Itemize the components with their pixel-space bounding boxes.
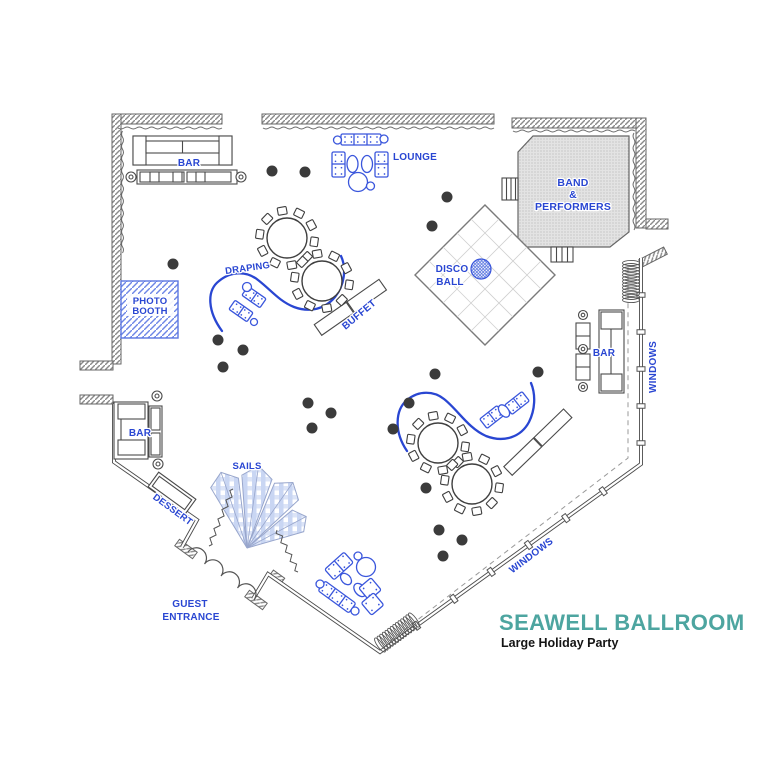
dining-table-top <box>452 464 492 504</box>
guest-entrance-label-1: GUEST <box>172 599 207 610</box>
wall-drape-wavy-line <box>122 131 124 253</box>
window-mullion-tick <box>637 330 645 335</box>
dining-chair <box>457 424 468 435</box>
dining-chair <box>255 229 264 239</box>
round-dining-table <box>440 452 503 515</box>
floorplan-canvas: BAR LOUNGE BAND & PERFORMERS DISCO BALL … <box>0 0 768 768</box>
stage-steps-left <box>502 178 518 200</box>
spiral-drape-coil-loop <box>623 267 640 272</box>
floorplan-svg: BAR LOUNGE BAND & PERFORMERS DISCO BALL … <box>0 0 768 768</box>
cocktail-table-dot <box>438 551 449 562</box>
sail-panel <box>211 472 247 548</box>
photo-booth-label-2: BOOTH <box>132 306 167 317</box>
stage-steps-bottom <box>551 247 573 262</box>
lounge-furniture <box>332 134 388 192</box>
cocktail-table-dot <box>457 535 468 546</box>
cocktail-table-dot <box>267 166 278 177</box>
disco-ball-label-1: DISCO <box>436 264 469 275</box>
buffet-tables-bottom <box>504 409 572 475</box>
disco-ball-label-2: BALL <box>436 277 463 288</box>
dining-chair <box>292 288 303 299</box>
dining-chair <box>306 219 317 230</box>
guest-entrance-doors <box>188 548 256 600</box>
windows-right-label: WINDOWS <box>648 341 659 393</box>
dining-chair <box>293 208 304 219</box>
dining-chair <box>406 434 415 444</box>
bar-top-label: BAR <box>178 158 201 169</box>
spiral-drape-coil-loop <box>623 264 640 269</box>
dining-chair <box>472 507 482 516</box>
cocktail-table-dot <box>213 335 224 346</box>
cocktail-table-dot <box>533 367 544 378</box>
sails-label: SAILS <box>233 461 262 472</box>
spiral-drape-coil-loop <box>623 285 640 290</box>
entrance-lounge-furniture <box>316 552 384 615</box>
window-mullion-tick <box>637 404 645 409</box>
page-title: SEAWELL BALLROOM <box>499 610 745 635</box>
dining-chair <box>328 251 339 262</box>
dining-chair <box>312 249 322 258</box>
round-dining-table <box>406 411 469 474</box>
wall-drape-wavy-line <box>263 127 494 129</box>
dining-chair <box>277 206 287 215</box>
dining-table-top <box>302 261 342 301</box>
dining-chair <box>486 497 498 509</box>
cocktail-table-dot <box>434 525 445 536</box>
cocktail-table-dot <box>300 167 311 178</box>
dining-chair <box>322 304 332 313</box>
dining-chair <box>290 272 299 282</box>
wall-drape-wavy-line <box>633 133 635 230</box>
cocktail-table-dot <box>307 423 318 434</box>
dining-chair <box>438 466 448 475</box>
sails-decor <box>209 466 306 572</box>
dining-chair <box>444 413 455 424</box>
disco-ball-icon <box>471 259 491 279</box>
dining-chair <box>491 465 502 476</box>
entrance-door-swings <box>188 548 256 600</box>
draping-furniture-bottom <box>480 391 530 428</box>
dining-chair <box>478 454 489 465</box>
guest-entrance-label-2: ENTRANCE <box>162 612 219 623</box>
dining-chair <box>412 418 424 430</box>
dining-chair <box>428 411 438 420</box>
wall-drape-wavy-line <box>513 130 635 132</box>
dining-chair <box>442 491 453 502</box>
dining-chair <box>345 280 354 290</box>
spiral-drape-coil-loop <box>623 297 640 302</box>
band-stage-label-1: BAND <box>557 177 588 189</box>
cocktail-table-dot <box>238 345 249 356</box>
cocktail-table-dot <box>388 424 399 435</box>
spiral-drape-coil-loop <box>623 276 640 281</box>
dining-chair <box>408 450 419 461</box>
band-stage-label-3: PERFORMERS <box>535 201 611 213</box>
cocktail-table-dot <box>430 369 441 380</box>
window-mullion-tick <box>637 367 645 372</box>
dining-table-top <box>267 218 307 258</box>
spiral-drape-coil-loop <box>623 279 640 284</box>
cocktail-table-dot <box>442 192 453 203</box>
wall-drape-wavy-line <box>118 127 222 129</box>
page-subtitle: Large Holiday Party <box>501 636 618 650</box>
spiral-drape-coil-loop <box>623 260 640 265</box>
cocktail-table-dot <box>427 221 438 232</box>
draping-furniture-top <box>229 283 266 326</box>
window-mullion-tick <box>637 441 645 446</box>
lounge-label: LOUNGE <box>393 152 437 163</box>
spiral-drape-coil-loop <box>623 282 640 287</box>
band-stage-label-2: & <box>569 189 577 201</box>
round-dining-table <box>290 249 353 312</box>
dining-chair <box>269 257 280 268</box>
dining-table-top <box>418 423 458 463</box>
cocktail-table-dot <box>218 362 229 373</box>
dining-chair <box>440 475 449 485</box>
cocktail-table-dot <box>421 483 432 494</box>
dining-chair <box>261 213 273 225</box>
dining-chair <box>257 245 268 256</box>
dining-chair <box>420 462 431 473</box>
bar-left-label: BAR <box>129 428 152 439</box>
dining-chair <box>287 261 297 270</box>
dining-chair <box>495 483 504 493</box>
cocktail-table-dot <box>168 259 179 270</box>
dining-chair <box>461 442 470 452</box>
dining-chair <box>454 503 465 514</box>
dining-chair <box>462 452 472 461</box>
cocktail-table-dot <box>404 398 415 409</box>
cocktail-table-dot <box>326 408 337 419</box>
bar-right-label: BAR <box>593 348 616 359</box>
dining-chair <box>310 237 319 247</box>
cocktail-table-dot <box>303 398 314 409</box>
